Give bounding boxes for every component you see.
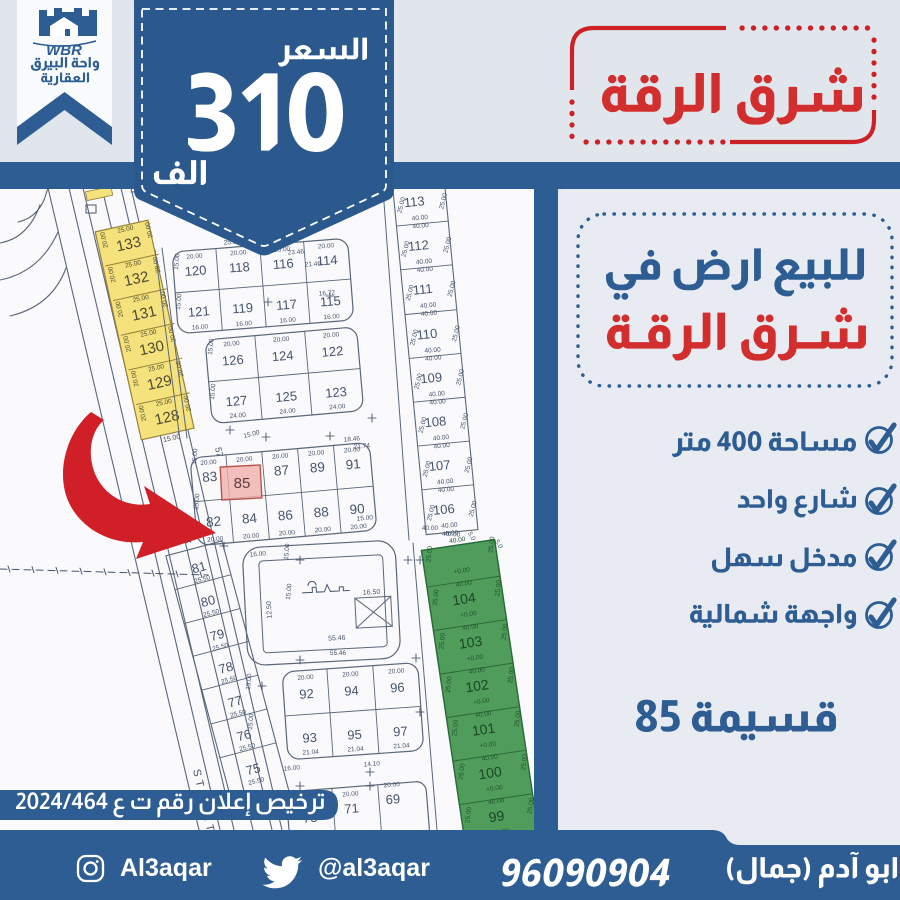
svg-text:84: 84: [241, 510, 258, 526]
svg-text:15.00: 15.00: [209, 383, 217, 400]
svg-text:93: 93: [302, 730, 317, 746]
svg-text:20.00: 20.00: [342, 790, 359, 798]
svg-text:15.00: 15.00: [247, 713, 255, 730]
svg-text:16.00: 16.00: [235, 320, 252, 328]
svg-text:16.00: 16.00: [323, 313, 340, 321]
svg-text:15.00: 15.00: [191, 448, 199, 465]
svg-text:110: 110: [416, 326, 438, 343]
svg-text:92: 92: [299, 686, 314, 702]
svg-text:126: 126: [221, 352, 244, 369]
svg-text:20.00: 20.00: [342, 671, 359, 679]
svg-text:Al3aqar: Al3aqar: [120, 854, 212, 882]
svg-text:20.00: 20.00: [383, 781, 400, 789]
svg-text:16.00: 16.00: [192, 323, 209, 331]
svg-text:82: 82: [205, 514, 221, 530]
svg-text:91: 91: [345, 456, 361, 472]
svg-text:122: 122: [321, 343, 344, 360]
svg-text:20.00: 20.00: [297, 674, 314, 682]
svg-text:15.00: 15.00: [283, 543, 291, 560]
svg-text:119: 119: [232, 300, 254, 317]
svg-text:112: 112: [407, 237, 429, 254]
svg-text:20.00: 20.00: [350, 523, 367, 531]
svg-text:127: 127: [225, 393, 248, 410]
svg-text:87: 87: [273, 462, 289, 478]
svg-text:@al3aqar: @al3aqar: [318, 854, 430, 882]
svg-text:124: 124: [271, 347, 294, 364]
svg-text:117: 117: [276, 296, 298, 313]
svg-text:113: 113: [403, 193, 425, 210]
svg-text:55.46: 55.46: [330, 650, 347, 657]
svg-text:125: 125: [275, 388, 298, 405]
svg-text:85: 85: [234, 475, 251, 492]
svg-text:20.00: 20.00: [308, 449, 325, 457]
svg-text:21.74: 21.74: [353, 442, 370, 450]
svg-text:14.10: 14.10: [363, 760, 380, 768]
svg-text:120: 120: [184, 262, 207, 279]
svg-text:WBR: WBR: [46, 42, 82, 59]
svg-text:15.00: 15.00: [207, 338, 215, 355]
svg-text:15.00: 15.00: [285, 583, 293, 600]
svg-text:20.00: 20.00: [223, 340, 240, 348]
svg-text:20.00: 20.00: [279, 529, 296, 537]
svg-text:99: 99: [488, 807, 506, 825]
svg-text:89: 89: [309, 459, 325, 475]
svg-text:15.00: 15.00: [193, 493, 201, 510]
svg-text:96: 96: [390, 680, 405, 696]
svg-text:21.46: 21.46: [305, 260, 322, 268]
svg-text:16.00: 16.00: [283, 764, 300, 772]
svg-text:97: 97: [393, 723, 408, 739]
svg-text:20.00: 20.00: [230, 249, 247, 257]
svg-text:71: 71: [344, 800, 360, 816]
svg-text:15.00: 15.00: [175, 293, 183, 310]
svg-text:123: 123: [325, 384, 348, 401]
svg-text:24.00: 24.00: [279, 407, 296, 415]
svg-text:20.00: 20.00: [200, 459, 217, 467]
svg-text:69: 69: [385, 791, 401, 807]
svg-text:83: 83: [202, 469, 218, 485]
svg-text:20.00: 20.00: [388, 667, 405, 675]
svg-text:86: 86: [277, 507, 293, 523]
svg-text:55.46: 55.46: [328, 635, 346, 643]
svg-text:20.00: 20.00: [272, 452, 289, 460]
svg-text:21.04: 21.04: [302, 749, 319, 757]
svg-text:116: 116: [272, 256, 294, 273]
svg-text:23.46: 23.46: [288, 248, 305, 256]
svg-text:24.00: 24.00: [229, 412, 246, 420]
svg-text:40.00: 40.00: [422, 525, 439, 532]
svg-text:118: 118: [228, 259, 250, 276]
svg-text:12.50: 12.50: [266, 601, 274, 619]
svg-text:21.04: 21.04: [393, 742, 410, 750]
svg-text:20.00: 20.00: [318, 242, 335, 250]
svg-text:20.00: 20.00: [236, 456, 253, 464]
svg-text:20.00: 20.00: [314, 526, 331, 534]
svg-text:15.00: 15.00: [173, 253, 181, 270]
svg-text:15.00: 15.00: [356, 514, 373, 522]
svg-text:95: 95: [347, 727, 362, 743]
svg-text:111: 111: [412, 281, 433, 298]
svg-text:40.00: 40.00: [444, 530, 461, 538]
svg-text:121: 121: [187, 303, 210, 320]
svg-text:20.00: 20.00: [323, 331, 340, 339]
svg-text:20.00: 20.00: [243, 532, 260, 540]
svg-text:16.00: 16.00: [249, 550, 266, 558]
svg-text:88: 88: [313, 504, 329, 520]
svg-text:20.00: 20.00: [273, 336, 290, 344]
svg-text:94: 94: [344, 683, 359, 699]
svg-text:16.50: 16.50: [363, 589, 381, 597]
svg-text:20.00: 20.00: [186, 253, 203, 261]
svg-text:21.04: 21.04: [347, 745, 364, 753]
svg-text:15.00: 15.00: [245, 673, 253, 690]
svg-text:16.00: 16.00: [279, 316, 296, 324]
svg-text:24.00: 24.00: [329, 403, 346, 411]
